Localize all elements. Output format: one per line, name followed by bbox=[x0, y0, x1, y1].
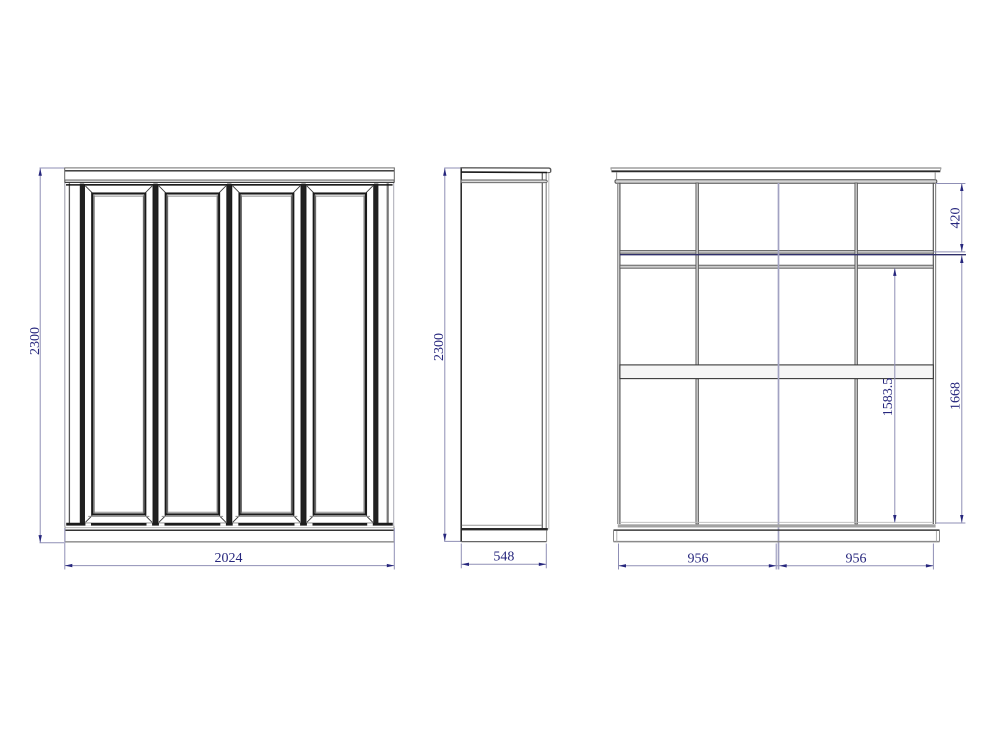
svg-text:2024: 2024 bbox=[215, 551, 243, 566]
svg-text:956: 956 bbox=[688, 551, 709, 566]
svg-text:2300: 2300 bbox=[28, 327, 43, 355]
svg-text:956: 956 bbox=[846, 551, 867, 566]
svg-text:2300: 2300 bbox=[432, 333, 447, 361]
svg-text:420: 420 bbox=[948, 208, 963, 229]
svg-text:1583.5: 1583.5 bbox=[881, 378, 896, 417]
svg-text:1668: 1668 bbox=[948, 382, 963, 410]
svg-text:548: 548 bbox=[493, 550, 514, 565]
